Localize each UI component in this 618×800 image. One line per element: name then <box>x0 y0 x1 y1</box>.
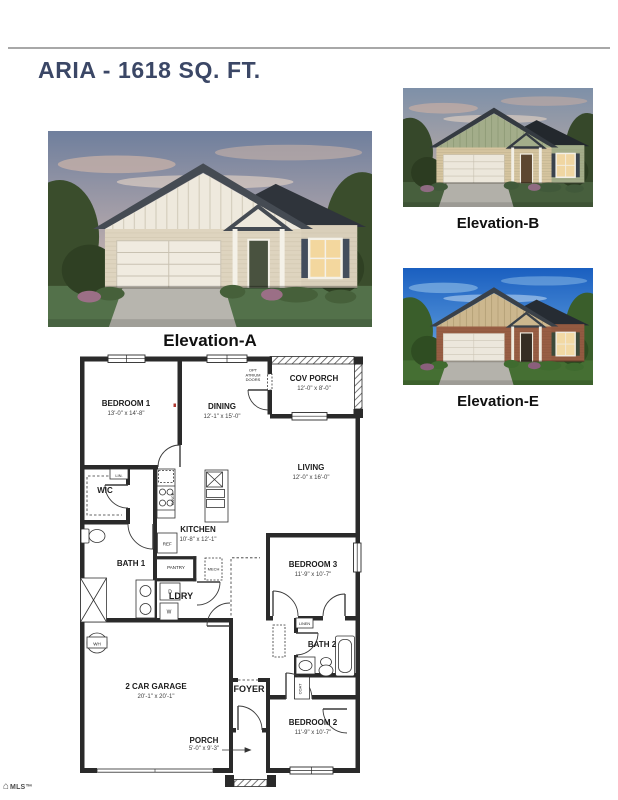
svg-text:MECH: MECH <box>208 567 220 572</box>
svg-text:LINEN: LINEN <box>299 622 310 626</box>
house-icon: ⌂ <box>3 782 9 792</box>
spec-sheet-page: ARIA - 1618 SQ. FT. Elevation-A <box>0 0 618 800</box>
room-label-living: LIVING <box>251 464 371 472</box>
room-label-bath1: BATH 1 <box>71 560 191 568</box>
room-dims-porch: 5'-0" x 9'-3" <box>144 746 264 752</box>
svg-text:LIN.: LIN. <box>115 473 122 478</box>
mls-logo-text: MLS™ <box>10 784 33 791</box>
svg-text:RANGE: RANGE <box>171 492 175 505</box>
room-label-bath2: BATH 2 <box>262 641 382 649</box>
floor-plan: OPT ATRIUM DOORS LIN. PANTRY MECH REF RA… <box>70 352 370 794</box>
elevation-b-caption: Elevation-B <box>403 215 593 232</box>
elevation-e-photo <box>403 268 593 385</box>
elevation-a-photo <box>48 131 372 327</box>
room-dims-dining: 12'-1" x 15'-0" <box>162 414 282 420</box>
header-rule <box>8 47 610 49</box>
room-label-bedroom2: BEDROOM 2 <box>253 719 373 727</box>
mls-logo: ⌂ MLS™ <box>3 782 33 792</box>
room-label-foyer: FOYER <box>189 685 309 694</box>
elevation-e-caption: Elevation-E <box>403 393 593 410</box>
room-label-wic: WIC <box>75 487 135 495</box>
elevation-a-caption: Elevation-A <box>48 331 372 351</box>
room-label-cov-porch: COV PORCH <box>254 375 374 383</box>
elevation-b-photo <box>403 88 593 207</box>
room-label-dining: DINING <box>162 403 282 411</box>
svg-text:WH: WH <box>93 642 101 647</box>
room-label-bedroom3: BEDROOM 3 <box>253 561 373 569</box>
room-label-ldry: LDRY <box>121 592 241 601</box>
room-dims-kitchen: 10'-8" x 12'-1" <box>138 537 258 543</box>
svg-text:W: W <box>167 610 172 616</box>
plan-doors <box>105 374 347 733</box>
room-dims-bedroom3: 11'-9" x 10'-7" <box>253 572 373 578</box>
room-dims-garage: 20'-1" x 20'-1" <box>96 694 216 700</box>
room-label-porch: PORCH <box>144 737 264 745</box>
room-label-kitchen: KITCHEN <box>138 526 258 534</box>
room-dims-cov-porch: 12'-0" x 8'-0" <box>254 386 374 392</box>
room-dims-living: 12'-0" x 16'-0" <box>251 475 371 481</box>
page-title: ARIA - 1618 SQ. FT. <box>38 57 261 84</box>
room-dims-bedroom2: 11'-9" x 10'-7" <box>253 730 373 736</box>
